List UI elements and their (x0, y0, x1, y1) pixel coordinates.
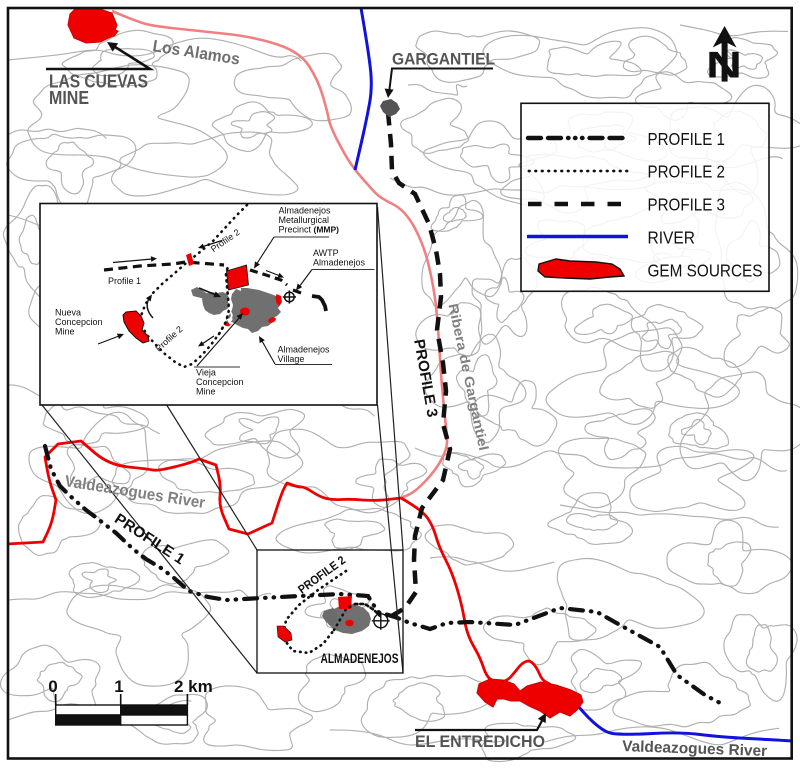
svg-text:MINE: MINE (49, 87, 89, 108)
svg-text:Village: Village (278, 354, 305, 364)
svg-text:0: 0 (48, 677, 57, 696)
svg-text:PROFILE 3: PROFILE 3 (648, 195, 726, 215)
svg-text:AWTP: AWTP (313, 248, 339, 258)
svg-text:GARGANTIEL: GARGANTIEL (392, 51, 495, 69)
svg-text:Almadenejos: Almadenejos (279, 206, 332, 216)
svg-text:PROFILE 1: PROFILE 1 (648, 129, 726, 149)
svg-text:Concepcion: Concepcion (55, 317, 103, 327)
svg-text:Vieja: Vieja (196, 368, 216, 378)
svg-text:GEM SOURCES: GEM SOURCES (648, 261, 763, 281)
svg-text:Mine: Mine (196, 387, 216, 397)
svg-text:Mine: Mine (55, 327, 75, 337)
svg-text:Profile 1: Profile 1 (108, 276, 141, 286)
svg-text:Precinct (MMP): Precinct (MMP) (279, 225, 340, 235)
svg-text:Nueva: Nueva (55, 308, 81, 318)
svg-text:ALMADENEJOS: ALMADENEJOS (321, 651, 399, 666)
svg-text:Metallurgical: Metallurgical (279, 215, 330, 225)
svg-text:RIVER: RIVER (648, 228, 696, 248)
svg-text:Almadenejos: Almadenejos (278, 345, 331, 355)
svg-text:EL ENTREDICHO: EL ENTREDICHO (415, 732, 545, 751)
svg-text:1: 1 (114, 677, 123, 696)
svg-text:Almadenejos: Almadenejos (313, 258, 366, 268)
svg-text:2 km: 2 km (174, 677, 213, 696)
svg-text:PROFILE 2: PROFILE 2 (648, 162, 726, 182)
svg-text:Concepcion: Concepcion (196, 377, 244, 387)
